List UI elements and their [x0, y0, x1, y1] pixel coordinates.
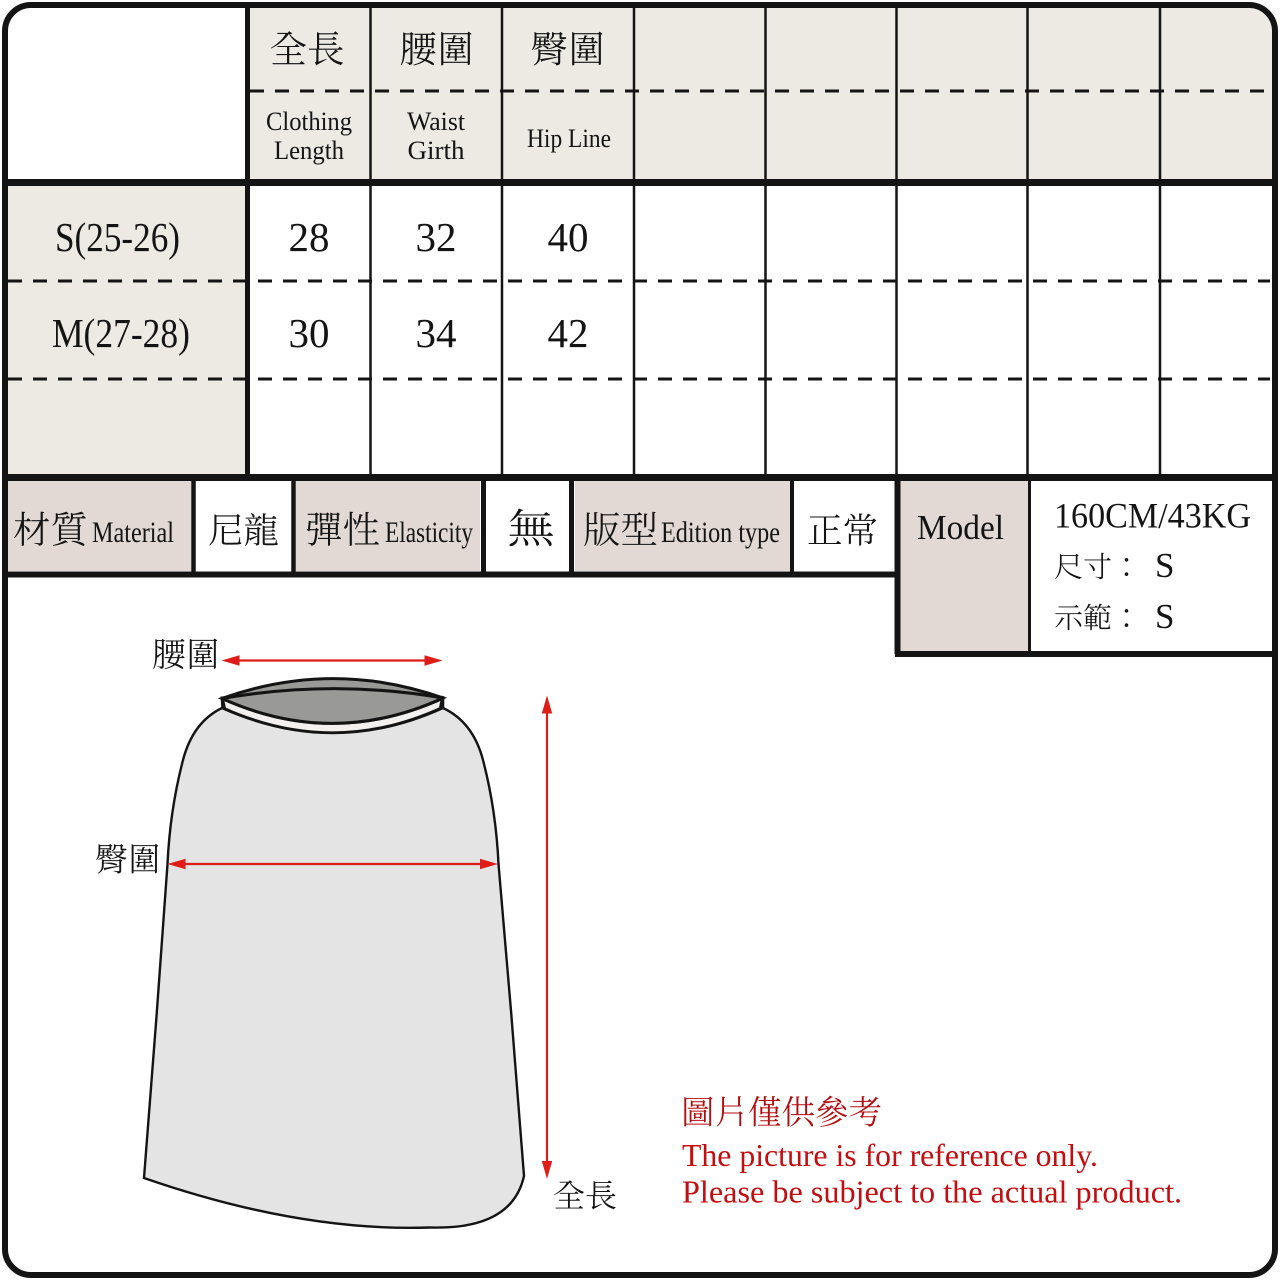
svg-text:40: 40 — [548, 214, 589, 260]
svg-text:S: S — [1155, 597, 1174, 636]
svg-text:Girth: Girth — [408, 136, 465, 165]
svg-text:M(27-28): M(27-28) — [52, 310, 190, 356]
svg-text:Material: Material — [92, 516, 174, 549]
svg-text:160CM/43KG: 160CM/43KG — [1054, 496, 1251, 536]
svg-text:S(25-26): S(25-26) — [55, 214, 180, 260]
svg-text:Hip Line: Hip Line — [527, 124, 611, 153]
svg-text:Length: Length — [274, 136, 344, 165]
svg-text:S: S — [1155, 546, 1174, 585]
svg-text:Elasticity: Elasticity — [385, 516, 473, 549]
svg-text:Clothing: Clothing — [266, 107, 352, 136]
svg-text:The picture is for reference o: The picture is for reference only. — [682, 1137, 1098, 1173]
svg-text:34: 34 — [416, 310, 457, 356]
svg-text:30: 30 — [289, 310, 330, 356]
svg-text:28: 28 — [289, 214, 330, 260]
svg-text:42: 42 — [548, 310, 589, 356]
svg-text:Waist: Waist — [407, 107, 466, 136]
svg-text:32: 32 — [416, 214, 457, 260]
svg-text:Edition type: Edition type — [661, 516, 780, 549]
svg-text:Please be subject to the actua: Please be subject to the actual product. — [682, 1174, 1182, 1210]
svg-text:Model: Model — [917, 508, 1004, 547]
